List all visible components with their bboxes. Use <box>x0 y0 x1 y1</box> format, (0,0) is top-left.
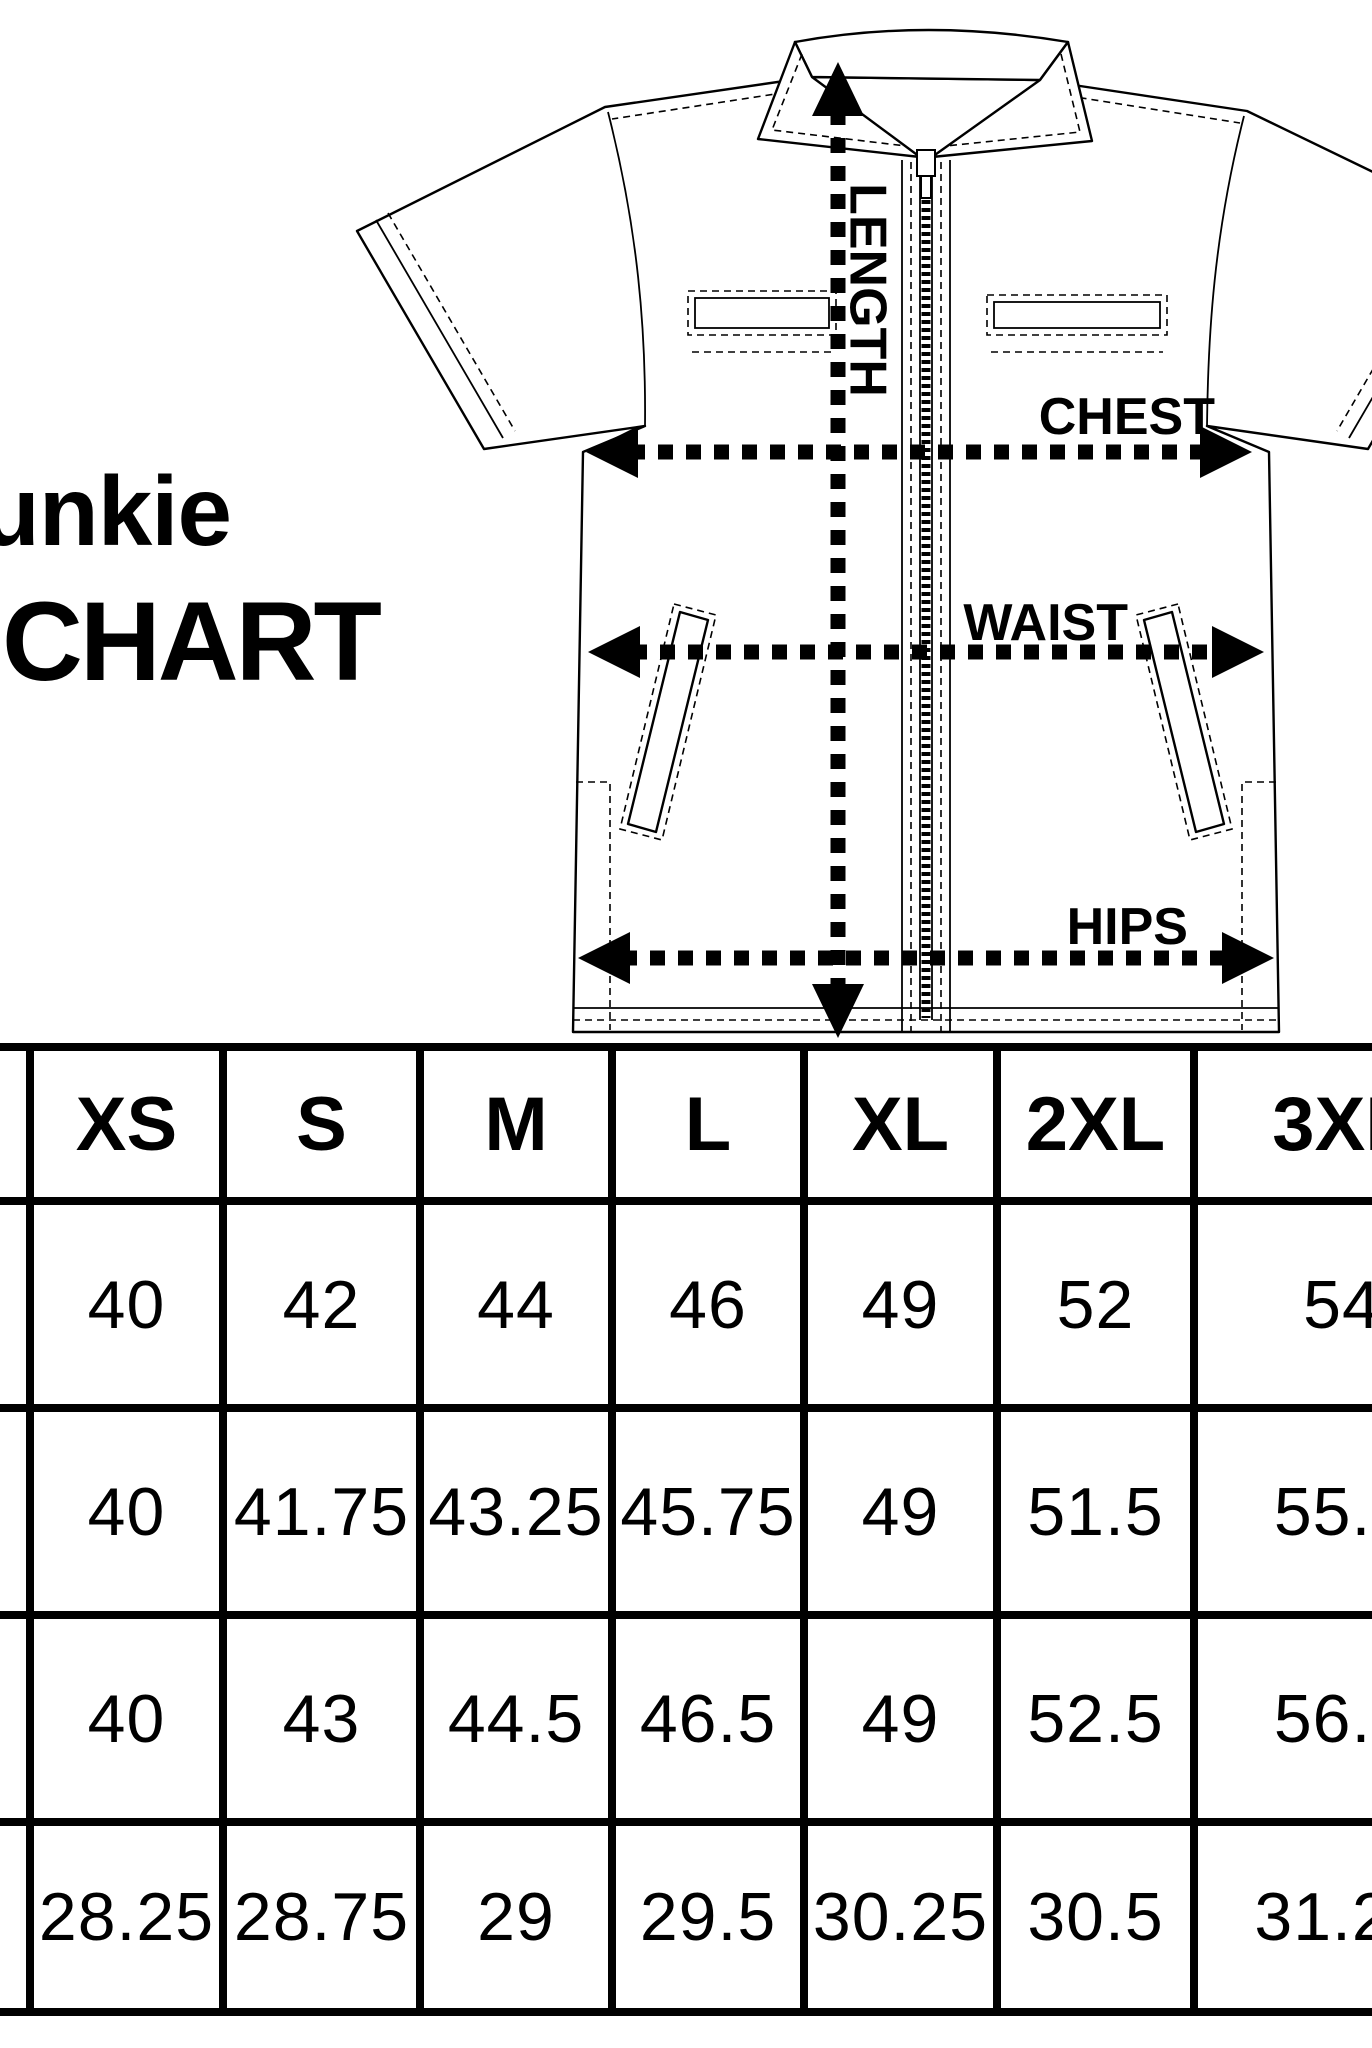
table-cell: 49 <box>804 1408 997 1615</box>
length-label: LENGTH <box>838 183 896 397</box>
table-cell: 46.5 <box>612 1615 804 1822</box>
table-cell: 30.25 <box>804 1822 997 2012</box>
table-row: 28.25 28.75 29 29.5 30.25 30.5 31.25 <box>0 1822 1372 2012</box>
table-cell: 43.25 <box>420 1408 612 1615</box>
table-cell: 40 <box>30 1201 223 1408</box>
table-cell: 51.5 <box>997 1408 1194 1615</box>
header-xl: XL <box>804 1047 997 1201</box>
table-cell: 44 <box>420 1201 612 1408</box>
brand-title: unkie <box>0 462 231 560</box>
table-cell: 31.25 <box>1194 1822 1372 2012</box>
shirt-outline <box>357 30 1372 1032</box>
table-cell: 29 <box>420 1822 612 2012</box>
header-s: S <box>223 1047 420 1201</box>
header-xs: XS <box>30 1047 223 1201</box>
table-cell: 42 <box>223 1201 420 1408</box>
table-cell: 55.5 <box>1194 1408 1372 1615</box>
chart-title: CHART <box>2 586 379 698</box>
table-cell: 40 <box>30 1408 223 1615</box>
table-cell: 52.5 <box>997 1615 1194 1822</box>
header-3xl: 3XL <box>1194 1047 1372 1201</box>
table-cell: 30.5 <box>997 1822 1194 2012</box>
table-cell: 29.5 <box>612 1822 804 2012</box>
header-m: M <box>420 1047 612 1201</box>
table-cell: 41.75 <box>223 1408 420 1615</box>
table-cell: 46 <box>612 1201 804 1408</box>
chest-label: CHEST <box>1039 388 1215 446</box>
header-l: L <box>612 1047 804 1201</box>
table-row: 40 43 44.5 46.5 49 52.5 56.5 <box>0 1615 1372 1822</box>
hips-label: HIPS <box>1067 898 1188 956</box>
table-cell: 54 <box>1194 1201 1372 1408</box>
table-row: 40 42 44 46 49 52 54 <box>0 1201 1372 1408</box>
table-cell: 40 <box>30 1615 223 1822</box>
shirt-diagram: LENGTH CHEST WAIST HIPS <box>340 0 1372 1040</box>
table-cell: 56.5 <box>1194 1615 1372 1822</box>
zipper-slider <box>917 150 935 176</box>
table-cell: 49 <box>804 1201 997 1408</box>
table-cell: 52 <box>997 1201 1194 1408</box>
waist-label: WAIST <box>963 594 1128 652</box>
header-2xl: 2XL <box>997 1047 1194 1201</box>
table-cell: 49 <box>804 1615 997 1822</box>
row-label-cell <box>0 1408 30 1615</box>
row-label-cell <box>0 1201 30 1408</box>
table-cell: 28.25 <box>30 1822 223 2012</box>
row-label-cell <box>0 1615 30 1822</box>
table-cell: 45.75 <box>612 1408 804 1615</box>
table-cell: 28.75 <box>223 1822 420 2012</box>
table-row: 40 41.75 43.25 45.75 49 51.5 55.5 <box>0 1408 1372 1615</box>
label-column-header <box>0 1047 30 1201</box>
shirt-svg: LENGTH CHEST WAIST HIPS <box>340 0 1372 1040</box>
table-cell: 44.5 <box>420 1615 612 1822</box>
size-chart-page: unkie CHART <box>0 0 1372 2048</box>
row-label-cell <box>0 1822 30 2012</box>
table-cell: 43 <box>223 1615 420 1822</box>
zipper-pull <box>921 176 931 198</box>
size-table: XS S M L XL 2XL 3XL 40 42 44 46 49 52 54… <box>0 1043 1372 2016</box>
header-row: XS S M L XL 2XL 3XL <box>0 1047 1372 1201</box>
